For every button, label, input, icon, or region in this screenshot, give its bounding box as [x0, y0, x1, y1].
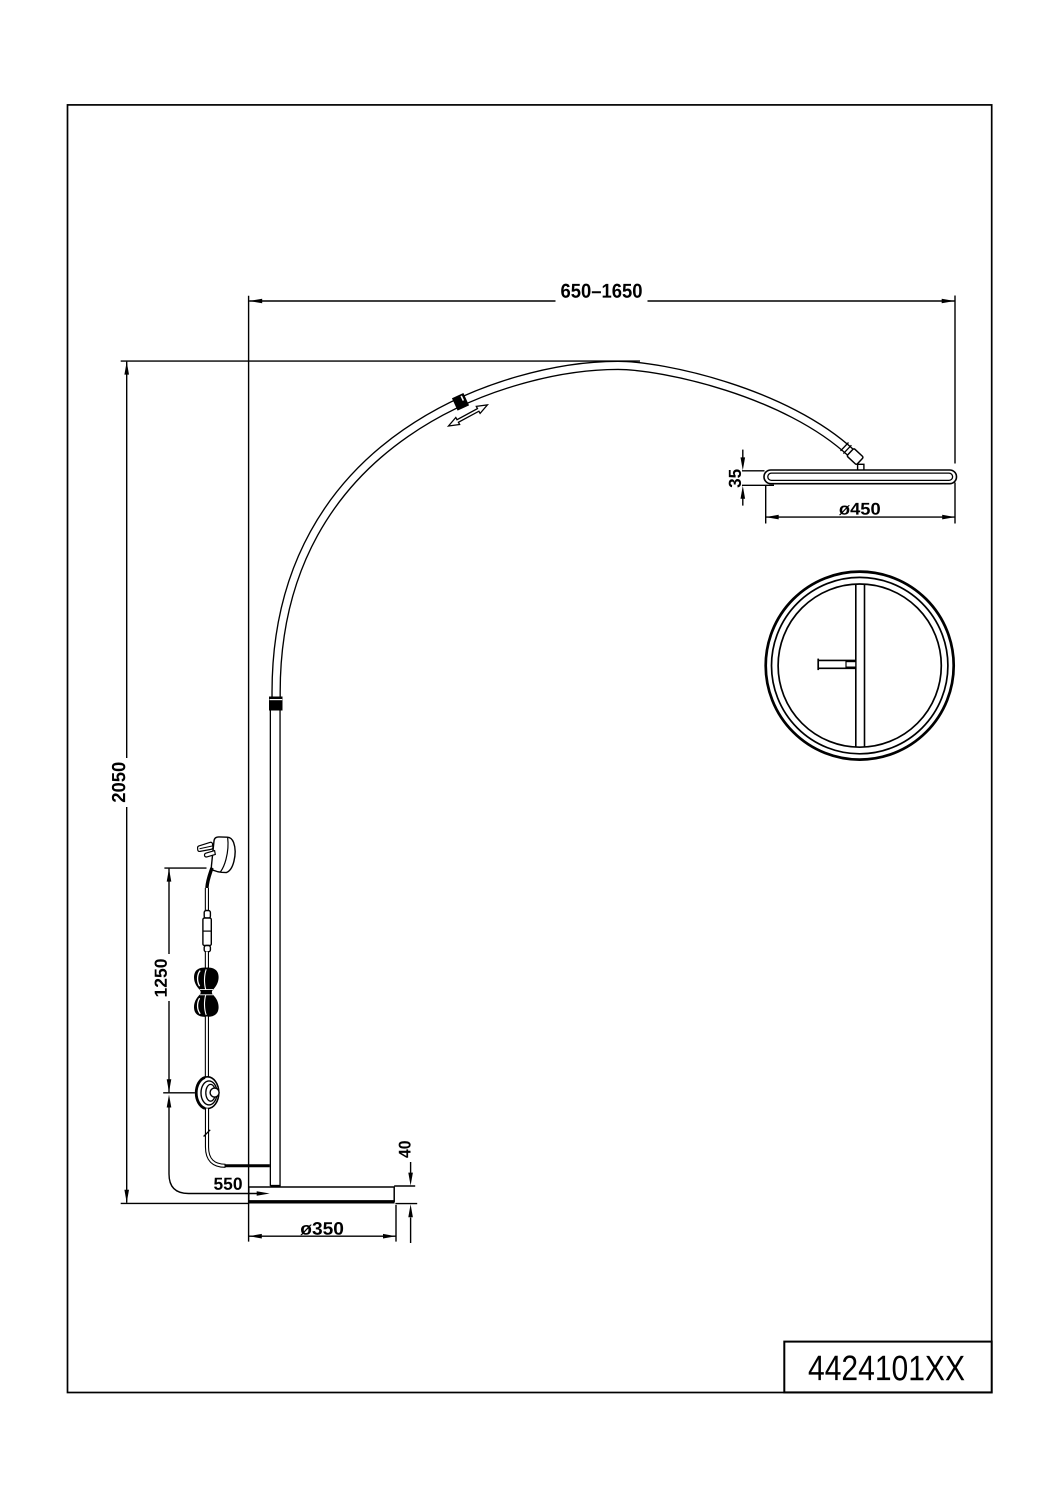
svg-text:550: 550 [213, 1174, 242, 1194]
svg-text:4424101XX: 4424101XX [808, 1348, 965, 1388]
svg-text:35: 35 [725, 469, 745, 488]
svg-text:40: 40 [395, 1140, 414, 1158]
svg-text:650–1650: 650–1650 [560, 281, 642, 303]
svg-text:ø450: ø450 [839, 500, 881, 519]
svg-text:2050: 2050 [109, 762, 130, 803]
svg-text:ø350: ø350 [300, 1219, 344, 1239]
svg-text:1250: 1250 [151, 958, 171, 997]
